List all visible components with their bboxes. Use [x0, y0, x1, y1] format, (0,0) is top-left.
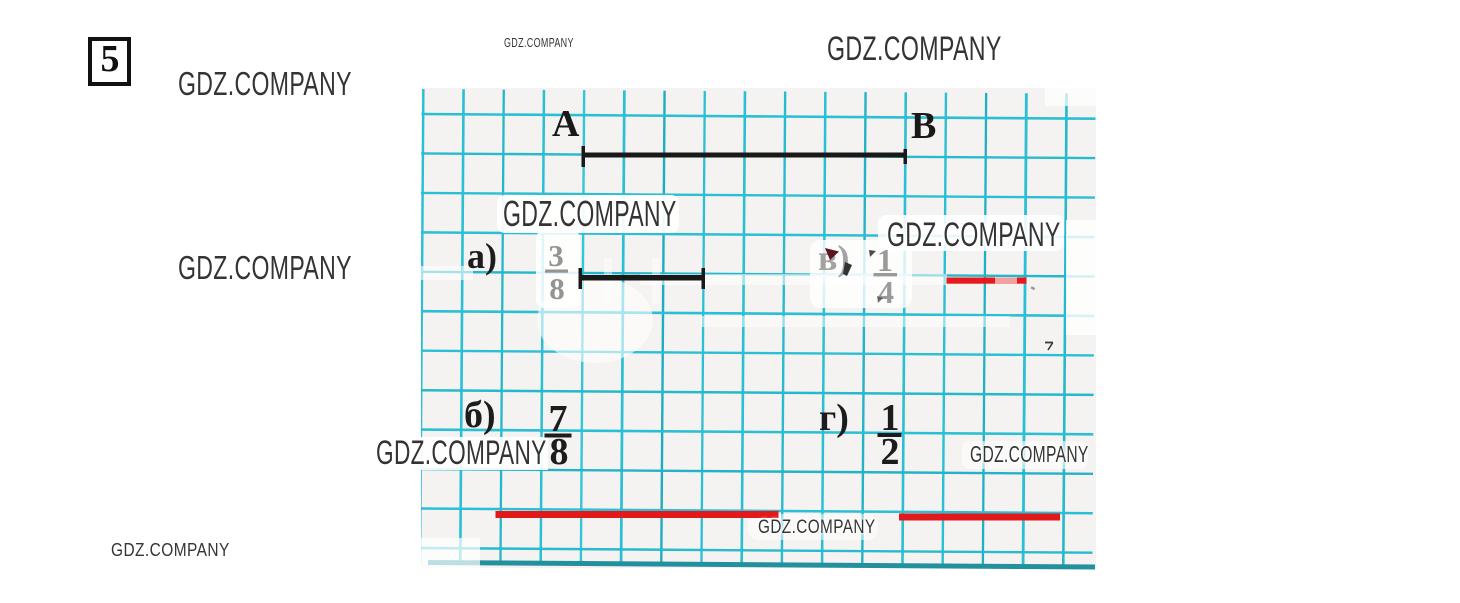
svg-text:B: B	[911, 105, 936, 147]
svg-text:г): г)	[819, 397, 849, 439]
svg-text:8: 8	[550, 431, 569, 473]
svg-text:4: 4	[878, 274, 894, 310]
svg-text:а): а)	[467, 236, 497, 276]
svg-text:2: 2	[881, 431, 900, 473]
svg-text:б): б)	[464, 394, 496, 436]
svg-text:3: 3	[548, 238, 564, 273]
svg-text:8: 8	[549, 271, 565, 306]
svg-text:A: A	[552, 103, 580, 145]
